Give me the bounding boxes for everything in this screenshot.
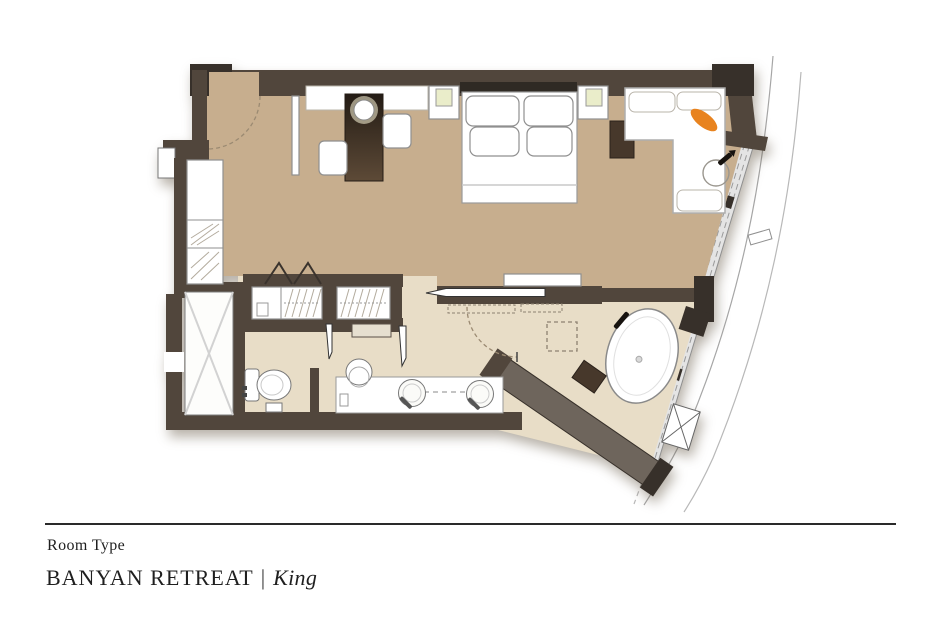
pillow — [470, 127, 519, 156]
service-niche — [158, 148, 175, 178]
shower-shaft — [185, 292, 233, 415]
minibar-cabinet — [187, 160, 223, 284]
walk-in-closet-left — [252, 287, 322, 319]
room-title: BANYAN RETREAT|King — [46, 565, 317, 591]
room-variant: King — [273, 565, 317, 590]
headboard — [460, 82, 577, 93]
desk-chair — [383, 114, 411, 148]
room-type-label: Room Type — [47, 537, 125, 555]
bedside-lamp — [586, 89, 602, 106]
luggage-bench — [352, 324, 391, 337]
pillow — [524, 96, 573, 126]
tv-console — [504, 274, 581, 286]
bedside-lamp — [436, 89, 452, 106]
floorplan-drawing — [0, 0, 940, 520]
sliding-door-leaf — [426, 289, 545, 297]
king-bed — [460, 82, 577, 203]
sofa-cushion — [629, 92, 675, 112]
nightstand-left — [429, 86, 459, 119]
pillow — [527, 127, 572, 156]
room-name: BANYAN RETREAT — [46, 565, 254, 590]
room-floorplan-page: Room Type BANYAN RETREAT|King — [0, 0, 940, 626]
entry-door-opening — [209, 72, 259, 96]
sofa-cushion — [677, 92, 721, 110]
walk-in-closet-right — [337, 287, 390, 319]
desk — [345, 94, 383, 181]
nightstand-right — [578, 86, 608, 119]
desk-chair — [319, 141, 347, 175]
flush-plate — [266, 403, 282, 412]
balcony-marker — [748, 229, 772, 245]
pillow — [466, 96, 519, 126]
room-title-separator: | — [254, 565, 273, 590]
desk-lamp — [354, 100, 374, 120]
divider-rule — [45, 523, 896, 525]
sofa-cushion — [677, 190, 722, 211]
standing-mirror — [292, 96, 299, 175]
